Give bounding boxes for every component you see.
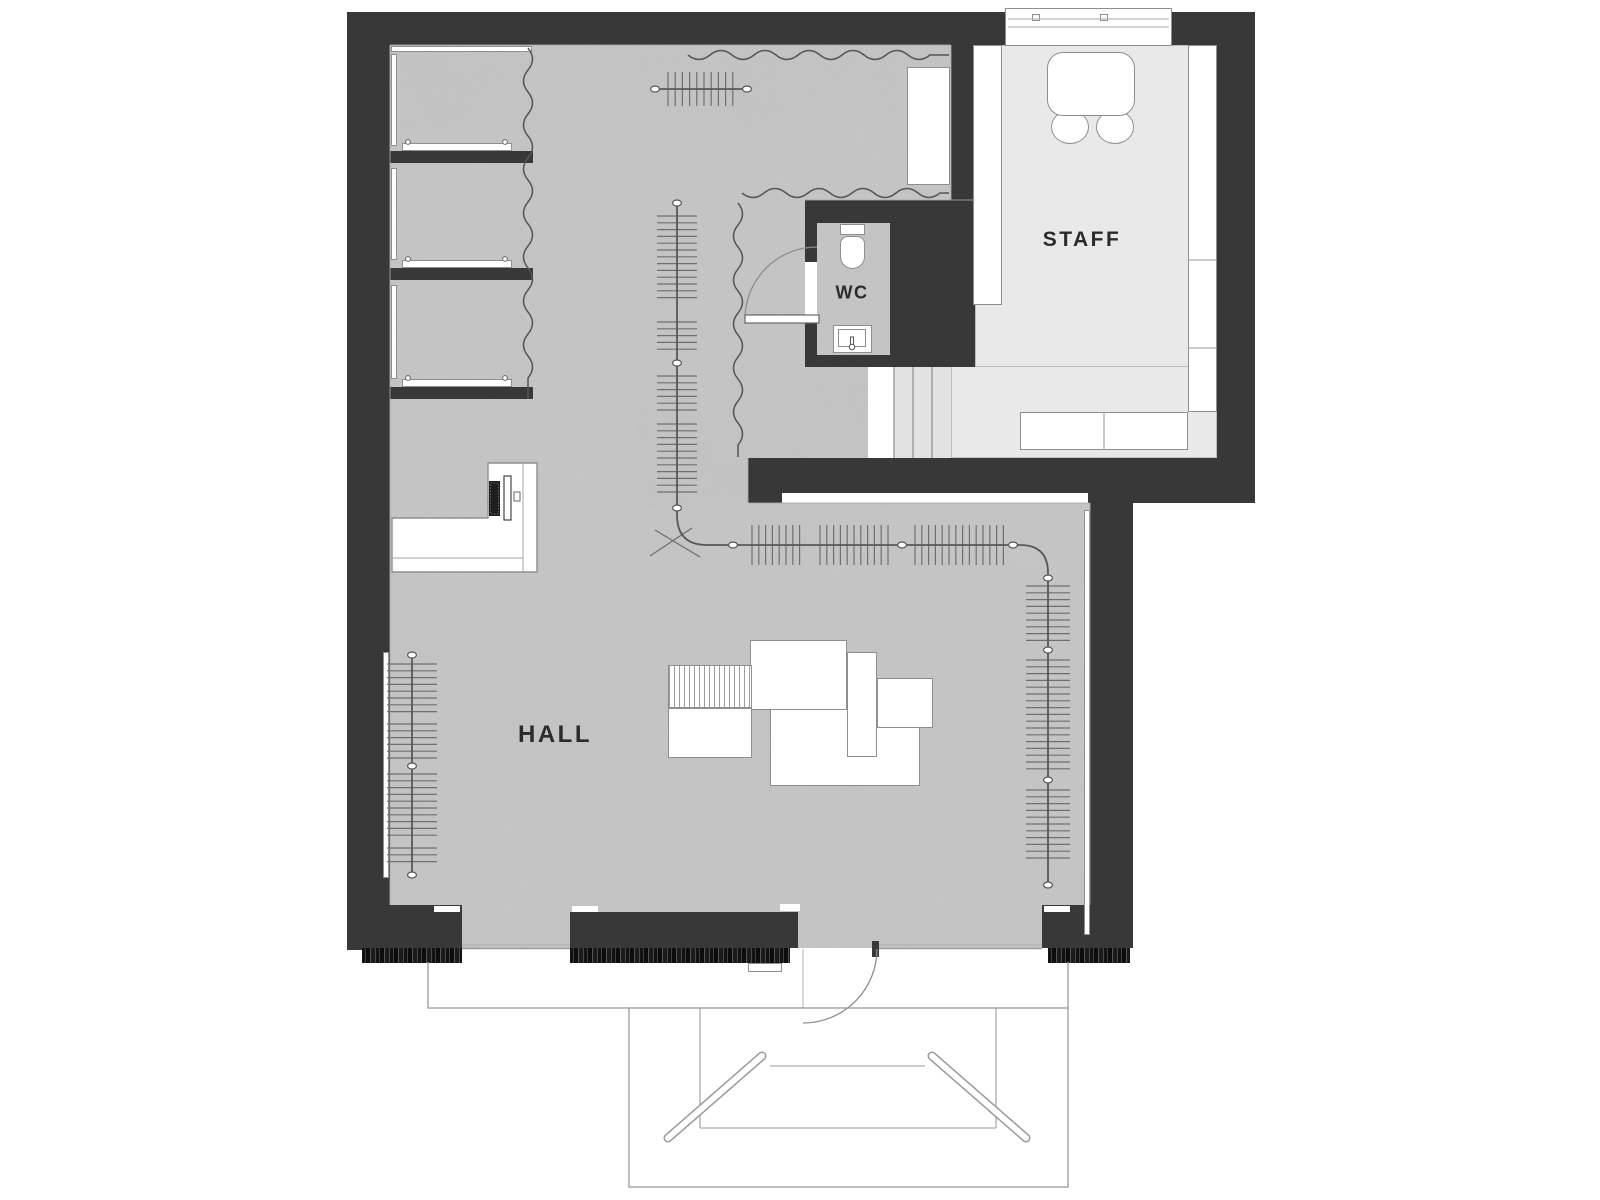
wc-label: WC	[836, 283, 869, 304]
display-table-small	[877, 678, 933, 728]
opening-marker-1	[434, 906, 460, 912]
entrance-door-swing	[803, 949, 877, 1023]
entry-step-tab	[748, 963, 782, 972]
opening-marker-4	[1044, 906, 1070, 912]
fringe-a	[362, 948, 462, 963]
toilet-tank	[840, 224, 865, 235]
fringe-d	[1048, 948, 1130, 963]
wall-top	[347, 12, 951, 45]
display-table-step	[668, 708, 752, 758]
opening-marker-2	[572, 906, 598, 912]
opening-marker-3	[780, 904, 800, 911]
booth-mirror-2	[391, 168, 397, 260]
display-table-side	[847, 652, 877, 757]
stair-first-tread	[868, 367, 894, 458]
wall-booth-stub-3	[390, 387, 533, 399]
wall-top-staff-right	[1172, 12, 1255, 45]
wall-bottom-block-b	[570, 912, 798, 948]
entry-door-stub	[872, 941, 879, 957]
exterior-entrance-stair	[428, 962, 1068, 1187]
booth-mirror-3	[391, 285, 397, 379]
staff-cabinet-left	[973, 45, 1002, 305]
wc-sink-basin	[838, 329, 866, 347]
wall-booth-stub-1	[390, 151, 533, 163]
staff-table	[1047, 52, 1135, 116]
mirror-right-wall	[1084, 510, 1090, 935]
booth-mirror-1	[391, 54, 397, 146]
display-platform-hatched	[668, 665, 752, 708]
staff-cabinet-right	[1188, 45, 1217, 412]
wc-door-opening	[805, 262, 817, 320]
booth-shelf-1	[402, 143, 512, 151]
booth-top-strip	[391, 46, 532, 52]
hall-label: HALL	[518, 721, 592, 749]
toilet-bowl	[840, 236, 865, 269]
staff-window	[1005, 8, 1172, 46]
wall-booth-stub-2	[390, 268, 533, 280]
display-table-main	[750, 640, 847, 710]
band-glazing-strip	[782, 493, 1088, 503]
window-tab-2	[1100, 14, 1108, 21]
floor-plan: HALL STAFF WC	[0, 0, 1600, 1200]
fringe-b	[570, 948, 790, 963]
booth-shelf-3	[402, 379, 512, 387]
staff-label: STAFF	[1043, 228, 1122, 252]
window-tab-1	[1032, 14, 1040, 21]
staff-counter	[1020, 412, 1188, 450]
wall-right-lower	[1090, 503, 1133, 948]
mirror-left-wall	[383, 652, 389, 878]
booth-shelf-2	[402, 260, 512, 268]
fitting-area-display	[907, 67, 950, 185]
wall-right-staff	[1217, 45, 1255, 458]
